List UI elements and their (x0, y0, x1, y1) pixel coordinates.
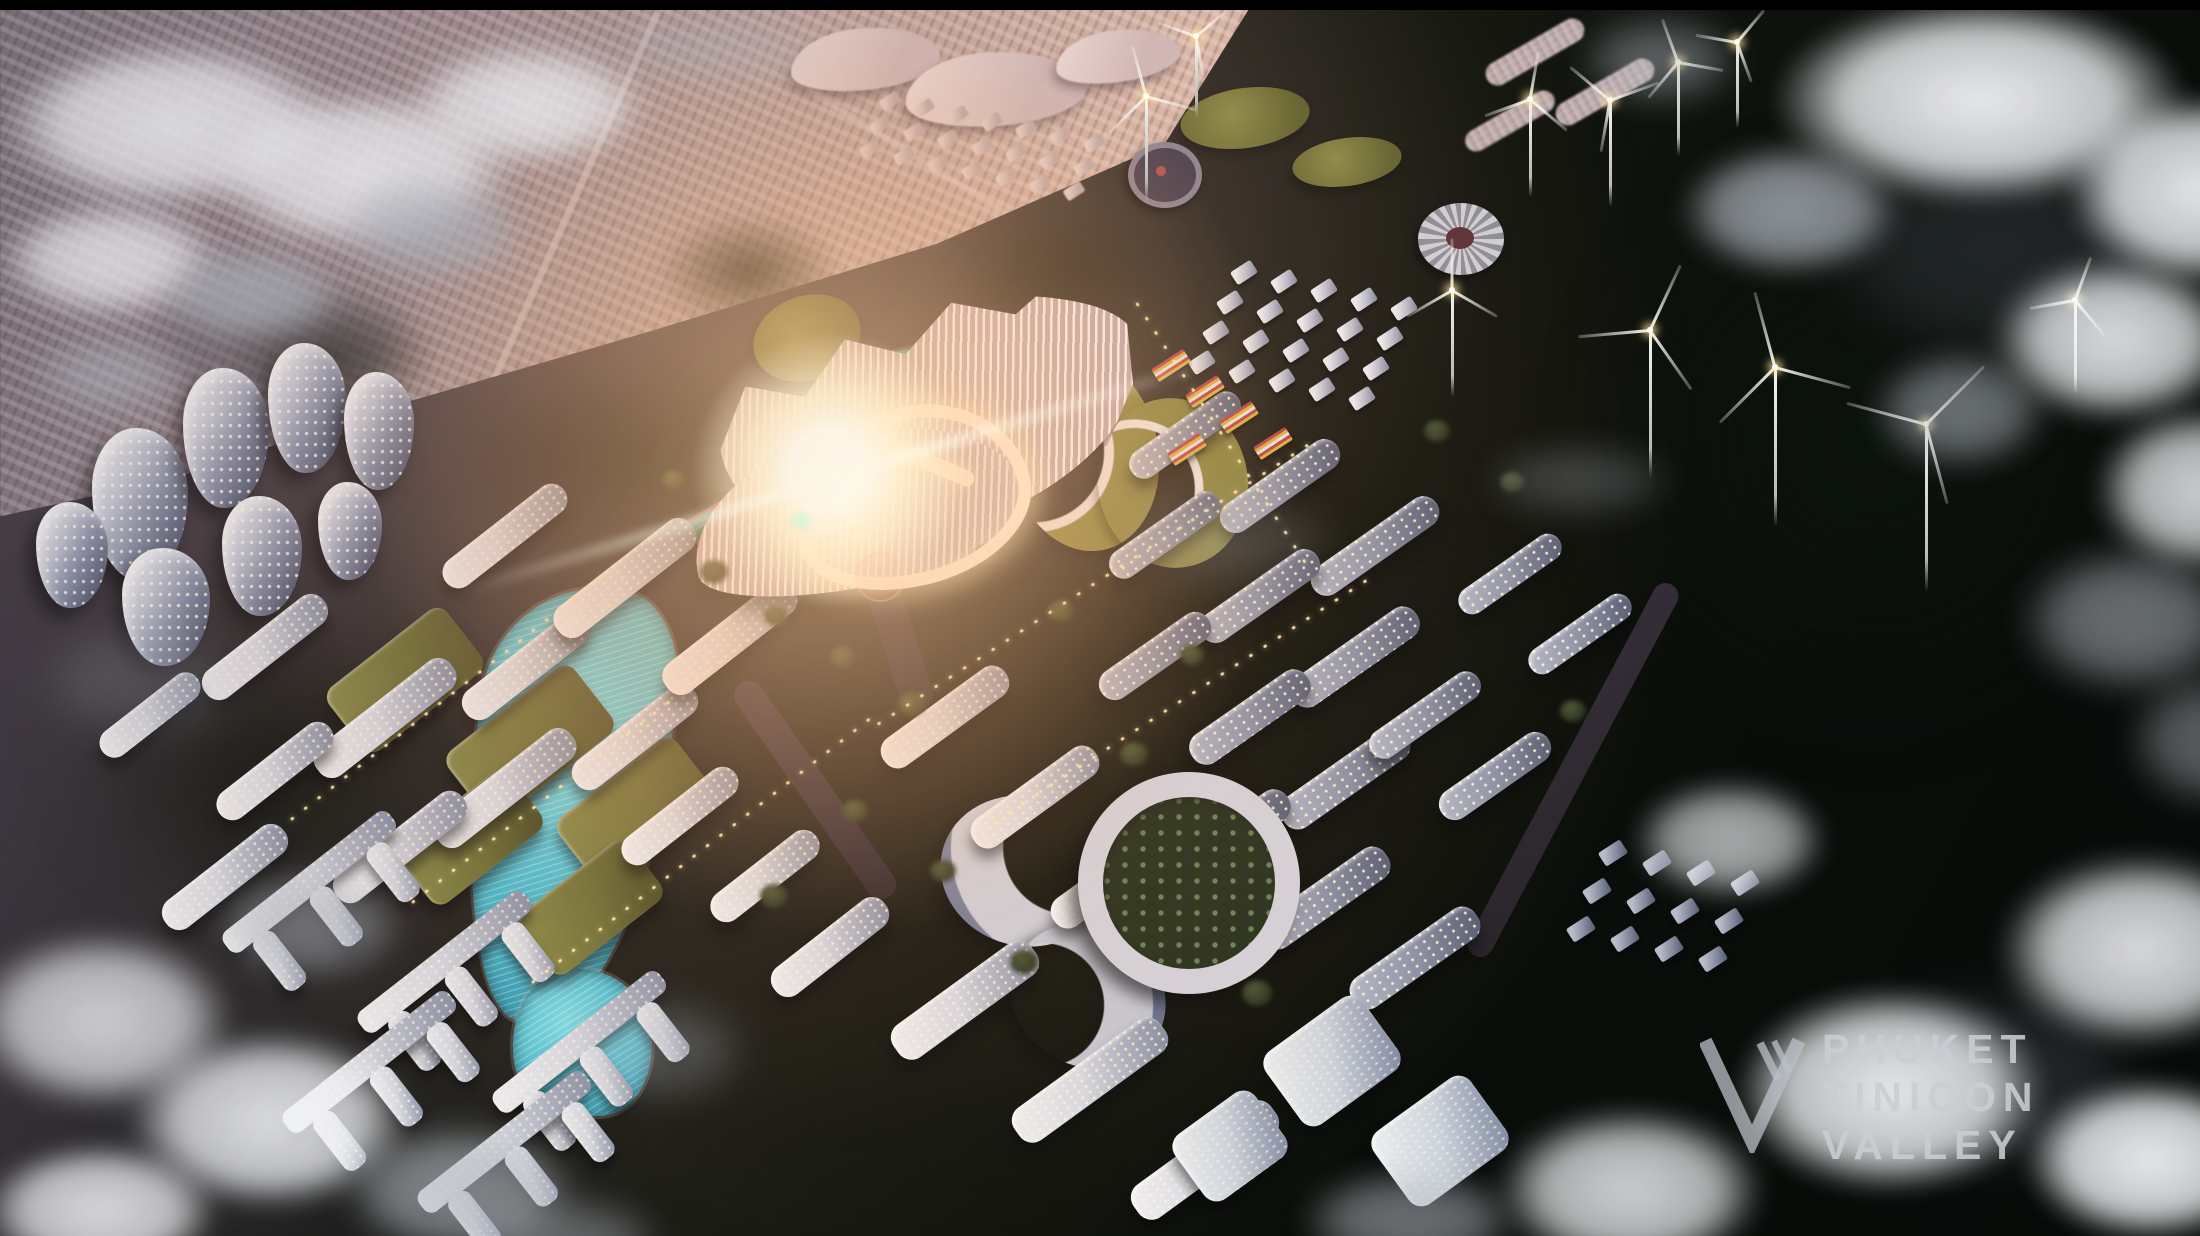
wind-turbine-hub (1923, 421, 1929, 427)
comb-wing (498, 918, 559, 986)
double-v-logo-icon (1700, 1033, 1808, 1153)
v-building-ridge (853, 424, 977, 489)
villa-house (1362, 356, 1390, 382)
wind-turbine-blade (2074, 299, 2106, 336)
villa-house (1082, 133, 1105, 154)
apartment-slab (1343, 900, 1487, 1016)
apartment-slab (436, 477, 574, 595)
wind-turbine-blade (1451, 289, 1498, 318)
comb-wing (633, 998, 694, 1066)
residential-tower (318, 482, 382, 580)
wind-turbine-hub (1607, 97, 1613, 103)
comb-wing (363, 838, 424, 906)
villa-house (1268, 368, 1296, 394)
wind-turbine-hub (1143, 93, 1149, 99)
comb-wing (501, 1143, 562, 1211)
tree (1500, 472, 1524, 492)
villa-house (868, 115, 891, 136)
villa-house (1390, 296, 1418, 322)
cloud (150, 60, 570, 280)
brand-watermark: PHUKET TINICON VALLEY (1700, 1025, 2170, 1185)
villa-house (1256, 299, 1284, 325)
villa-house (1028, 174, 1051, 195)
villa-house (1216, 290, 1244, 316)
cloud (0, 1120, 260, 1236)
wind-turbine-hub (1193, 33, 1199, 39)
villa-house (960, 160, 983, 181)
wind-turbine-blade (1146, 95, 1197, 111)
wind-turbine-blade (1661, 18, 1680, 62)
tree (1048, 600, 1074, 622)
villa-house (994, 167, 1017, 188)
cloud (1450, 430, 1710, 530)
cloud (120, 230, 380, 360)
tree (662, 470, 684, 489)
cloud (0, 10, 400, 240)
wind-turbine-tower (1925, 424, 1928, 592)
tree (1242, 980, 1272, 1006)
wind-turbine-tower (2074, 300, 2077, 394)
wind-turbine-blade (1925, 365, 1985, 425)
residential-tower (268, 343, 346, 473)
villa-house (1350, 287, 1378, 313)
green-lawn-crescent (1289, 131, 1405, 194)
apartment-slab (764, 891, 895, 1004)
villa-house (1270, 269, 1298, 295)
apartment-slab (1193, 543, 1326, 650)
villa-house (1188, 350, 1216, 376)
wind-turbine-tower (1774, 367, 1777, 527)
residential-tower (222, 496, 302, 616)
villa-house (1714, 907, 1745, 935)
villa-house (892, 146, 915, 167)
wind-turbine-blade (1925, 424, 1949, 504)
brand-line-1: PHUKET (1822, 1025, 2170, 1073)
villa-house (878, 91, 901, 112)
villa-house (1296, 308, 1324, 334)
cloud (1700, 0, 2200, 240)
wind-turbine-hub (1527, 96, 1533, 102)
villa-house (1004, 143, 1027, 164)
cloud (2020, 60, 2200, 320)
villa-house (1626, 887, 1657, 915)
villa-house (1230, 260, 1258, 286)
villa-house (1730, 869, 1761, 897)
helipad-marker (1156, 166, 1166, 176)
villa-house (1038, 150, 1061, 171)
villa-house (1072, 157, 1095, 178)
apartment-slab (1304, 490, 1445, 602)
villa-house (1310, 278, 1338, 304)
cloud (1980, 520, 2200, 720)
cloud (1750, 100, 2200, 400)
cloud (2100, 650, 2200, 830)
wind-turbine-hub (1647, 327, 1653, 333)
wind-turbine-hub (1772, 364, 1778, 370)
wind-turbine-tower (1145, 96, 1148, 203)
villa-house (926, 153, 949, 174)
cloud (360, 20, 690, 190)
wind-turbine-blade (1578, 329, 1650, 338)
villa-house (1670, 897, 1701, 925)
comb-wing (306, 883, 367, 951)
brand-line-3: VALLEY (1822, 1121, 2170, 1169)
cloud (300, 160, 560, 300)
tree (830, 646, 856, 668)
villa-house (1322, 347, 1350, 373)
wind-turbine-hub (2072, 297, 2078, 303)
villa-house (1654, 935, 1685, 963)
wind-turbine-blade (1736, 9, 1765, 43)
apartment-slab (1093, 606, 1218, 707)
helipad-plaza (1128, 142, 1202, 208)
villa-house (1582, 877, 1613, 905)
apartment-slab (1365, 1069, 1515, 1212)
villa-house (1642, 849, 1673, 877)
wind-turbine-blade (1108, 95, 1147, 134)
apartment-slab (1183, 663, 1317, 771)
villa-house (1598, 839, 1629, 867)
villa-house (1242, 329, 1270, 355)
villa-house (1202, 320, 1230, 346)
cloud (1640, 120, 1940, 300)
comb-wing (558, 1098, 619, 1166)
cloud (2060, 380, 2200, 600)
comb-wing (309, 1107, 370, 1175)
round-stadium (1418, 203, 1504, 275)
brand-name: PHUKET TINICON VALLEY (1822, 1025, 2170, 1185)
tree (1424, 420, 1450, 442)
wind-turbine-hub (1734, 39, 1740, 45)
comb-wing (444, 1187, 505, 1236)
container-stack (1151, 349, 1191, 382)
wind-turbine-blade (1753, 291, 1776, 367)
comb-wing (423, 1018, 484, 1086)
residential-tower (36, 502, 108, 608)
villa-house (1348, 386, 1376, 412)
villa-house (1610, 925, 1641, 953)
wind-turbine-tower (1529, 99, 1532, 197)
wind-turbine-tower (1736, 42, 1739, 128)
wind-turbine-hub (1675, 59, 1681, 65)
ring-building (1078, 772, 1300, 994)
wind-turbine-tower (1649, 330, 1652, 478)
apartment-slab (93, 666, 206, 764)
apartment-slab (1363, 665, 1487, 764)
wind-turbine-hub (1449, 287, 1455, 293)
villa-house (1566, 915, 1597, 943)
wind-turbine-blade (1775, 366, 1851, 389)
wind-turbine-blade (1719, 366, 1776, 423)
villa-house (1686, 859, 1717, 887)
apartment-slab (1453, 528, 1567, 620)
villa-house (1308, 377, 1336, 403)
wind-turbine-tower (1451, 290, 1454, 397)
brand-line-2: TINICON (1822, 1073, 2170, 1121)
wind-turbine-blade (2074, 256, 2093, 300)
villa-house (970, 136, 993, 157)
wind-turbine-blade (1649, 329, 1693, 390)
aerial-render-scene: PHUKET TINICON VALLEY (0, 0, 2200, 1236)
villa-house (1698, 945, 1729, 973)
comb-wing (366, 1063, 427, 1131)
wind-turbine-blade (1678, 61, 1724, 72)
town-road (426, 11, 660, 525)
villa-house (902, 122, 925, 143)
tent-structure (1052, 22, 1183, 91)
apartment-slab (704, 823, 826, 928)
wind-turbine-blade (1195, 9, 1228, 37)
wind-turbine-blade (1451, 238, 1454, 290)
villa-house (1282, 338, 1310, 364)
cloud (0, 180, 260, 340)
letterbox-bar (0, 0, 2200, 10)
wind-turbine-tower (1677, 62, 1680, 156)
wind-turbine-blade (1695, 33, 1737, 43)
villa-house (1336, 317, 1364, 343)
tree (1560, 700, 1586, 722)
wind-turbine-tower (1609, 100, 1612, 207)
villa-house (936, 129, 959, 150)
apartment-slab (1257, 989, 1407, 1132)
wind-turbine-blade (1846, 401, 1926, 425)
comb-wing (249, 927, 310, 995)
villa-house (1062, 181, 1085, 202)
villa-house (858, 139, 881, 160)
wind-turbine-blade (2029, 299, 2075, 310)
residential-tower (122, 548, 210, 666)
villa-house (1048, 126, 1071, 147)
residential-tower (344, 372, 414, 490)
villa-house (1228, 359, 1256, 385)
residential-tower (183, 368, 269, 508)
wind-turbine-blade (1649, 264, 1682, 331)
apartment-slab (1461, 86, 1559, 155)
container-stack (1253, 427, 1293, 460)
villa-house (1376, 326, 1404, 352)
tree (1120, 742, 1148, 766)
